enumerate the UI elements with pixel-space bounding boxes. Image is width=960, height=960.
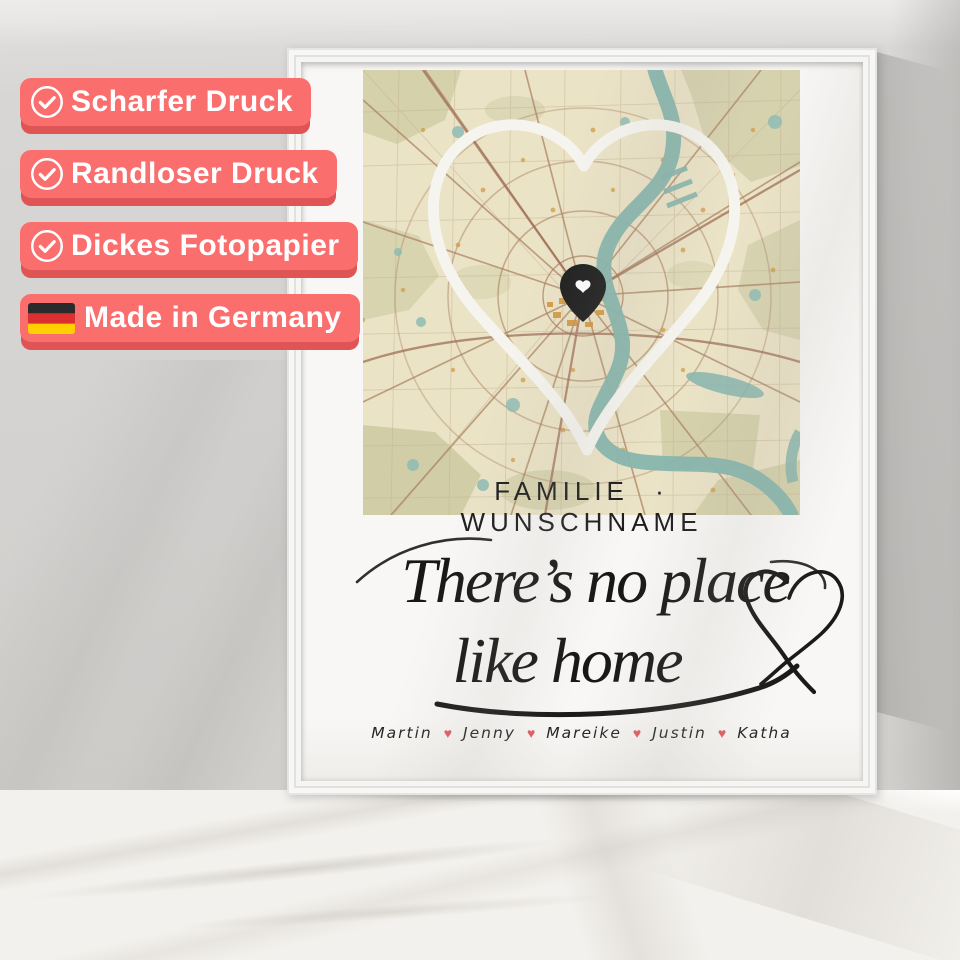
heart-icon: ♥ — [444, 726, 452, 740]
badge-label: Scharfer Druck — [71, 83, 293, 121]
badge-label: Made in Germany — [84, 299, 342, 337]
quote-line2: like home — [453, 625, 683, 696]
heart-icon: ♥ — [633, 726, 641, 740]
city-map — [363, 70, 800, 515]
badge-scharfer-druck: Scharfer Druck — [20, 78, 311, 126]
badge-made-in-germany: Made in Germany — [20, 294, 360, 342]
poster: FAMILIE · WUNSCHNAME There’s no place li… — [301, 62, 863, 781]
german-flag-icon — [28, 303, 75, 334]
family-name: Katha — [737, 724, 792, 742]
check-circle-icon — [28, 155, 66, 193]
family-name: Jenny — [463, 724, 516, 742]
poster-frame: FAMILIE · WUNSCHNAME There’s no place li… — [287, 48, 877, 795]
heart-icon: ♥ — [718, 726, 726, 740]
badge-label: Dickes Fotopapier — [71, 227, 340, 265]
quote-lettering: There’s no place like home — [339, 520, 849, 725]
ceiling-light-band — [0, 0, 960, 55]
heart-icon: ♥ — [527, 726, 535, 740]
family-name: Martin — [371, 724, 432, 742]
badge-dickes-fotopapier: Dickes Fotopapier — [20, 222, 358, 270]
frame-cast-shadow — [877, 52, 960, 735]
quote-line1: There’s no place — [401, 545, 789, 616]
check-circle-icon — [28, 83, 66, 121]
badge-randloser-druck: Randloser Druck — [20, 150, 337, 198]
product-photo: FAMILIE · WUNSCHNAME There’s no place li… — [0, 0, 960, 960]
wall-soft-shadows — [0, 360, 296, 790]
names-row: Martin ♥ Jenny ♥ Mareike ♥ Justin ♥ Kath… — [353, 724, 810, 742]
family-name: Justin — [652, 724, 707, 742]
badge-label: Randloser Druck — [71, 155, 319, 193]
check-circle-icon — [28, 227, 66, 265]
family-name: Mareike — [546, 724, 622, 742]
